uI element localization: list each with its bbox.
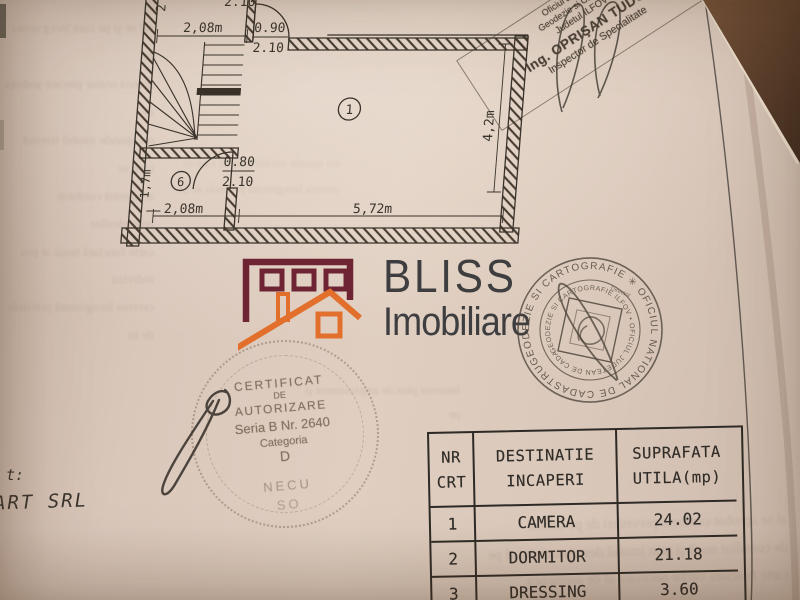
table-header-destinatie: DESTINATIE INCAPERI <box>474 430 619 507</box>
dim-bottom-left: 2,08m <box>163 202 203 217</box>
door-hall-width: 0.80 <box>223 155 255 170</box>
door-hall-height: 2.10 <box>221 175 253 190</box>
dim-hall-height: 1,7m <box>137 170 153 199</box>
certificate-name-fragment-2: SO <box>208 489 371 521</box>
certificate-signature <box>162 390 230 494</box>
area-table: NR CRT DESTINATIE INCAPERI SUPRAFATA UTI… <box>427 425 747 600</box>
logo-building-outline <box>246 262 350 322</box>
table-header-suprafata: SUPRAFATA UTILA(mp) <box>617 428 737 504</box>
certificate-stamp-inner-ring <box>206 355 364 513</box>
dim-top-partial: 2.10 <box>224 0 256 10</box>
certificate-stamp: CERTIFICAT DE AUTORIZARE Seria B Nr. 264… <box>197 369 370 521</box>
paper-crease <box>737 0 796 600</box>
staircase <box>147 42 245 146</box>
stamp-scribble <box>571 312 609 350</box>
logo-window-3 <box>326 271 346 289</box>
paper-edge-highlight <box>702 0 799 163</box>
round-stamp: GEODEZIE SI CARTOGRAFIE ✳ OFICIUL NATION… <box>495 245 685 420</box>
stamp-diamond <box>558 298 622 362</box>
bliss-logo-text: BLISS Imobiliare <box>383 252 546 344</box>
table-row-1-sup: 24.02 <box>619 502 738 539</box>
stamp-signature-loop <box>550 280 627 385</box>
dim-top-edge: 2 <box>154 4 170 12</box>
door-top-height: 2.10 <box>252 41 284 56</box>
document-photo: rul se şi pe care înreg strata pe menea … <box>0 0 800 600</box>
table-row-2-dest: DORMITOR <box>476 539 620 577</box>
dimension-labels: 2.10 2 2,08m 0.90 2.10 0.80 2.10 1,7m 2,… <box>136 0 507 217</box>
svg-text:GEODEZIE SI CARTOGRAFIE ✳ OFIC: GEODEZIE SI CARTOGRAFIE ✳ OFICIUL NATION… <box>495 245 685 420</box>
table-row-3-sup: 3.60 <box>620 572 739 600</box>
table-row-2-nr: 2 <box>431 542 477 578</box>
logo-subtitle: Imobiliare <box>383 300 530 344</box>
door-top <box>253 4 292 40</box>
table-row-1-nr: 1 <box>431 507 477 543</box>
logo-window-1 <box>262 271 282 289</box>
certificate-stamp-ring <box>191 340 379 528</box>
logo-chimney <box>278 294 288 320</box>
room-markers <box>171 98 362 191</box>
round-stamp-director: Director <box>609 286 631 299</box>
bliss-logo-icon <box>238 254 373 364</box>
table-row-2-sup: 21.18 <box>619 537 738 574</box>
logo-window-2 <box>294 271 314 289</box>
footer-label-fragment: t: <box>6 466 24 484</box>
table-surface-corner <box>697 0 800 180</box>
inspector-stamp: Oficiul Judetean Geodezie si Cadastru Ju… <box>456 0 720 131</box>
table-header-nr: NR CRT <box>429 433 476 508</box>
left-edge-mark <box>0 4 6 38</box>
round-stamp-inner-text: GEODEZIE SI CARTOGRAFIE ILFOV • OFICIUL … <box>495 245 652 420</box>
door-top-width: 0.90 <box>254 21 286 36</box>
logo-brand: BLISS <box>383 252 533 300</box>
plan-walls <box>121 0 538 246</box>
room-6-number: 6 <box>177 175 185 189</box>
svg-text:GEODEZIE SI CARTOGRAFIE ILFOV: GEODEZIE SI CARTOGRAFIE ILFOV • OFICIUL … <box>495 245 652 420</box>
room-1-number: 1 <box>345 103 354 118</box>
logo-house-window <box>318 314 340 336</box>
table-row-1-dest: CAMERA <box>476 504 620 542</box>
dim-top-room: 2,08m <box>183 21 223 36</box>
footer-company-fragment: ART SRL <box>0 489 88 514</box>
door-hall <box>193 152 233 189</box>
left-edge-mark-2 <box>0 120 4 150</box>
certificate-name-fragment: NECU <box>206 469 369 503</box>
dim-bottom-right: 5,72m <box>352 202 392 217</box>
logo-roof <box>238 292 360 352</box>
round-stamp-outer-text: GEODEZIE SI CARTOGRAFIE ✳ OFICIUL NATION… <box>495 245 685 420</box>
table-row-3-dest: DRESSING <box>477 574 621 600</box>
table-row-3-nr: 3 <box>432 577 478 600</box>
